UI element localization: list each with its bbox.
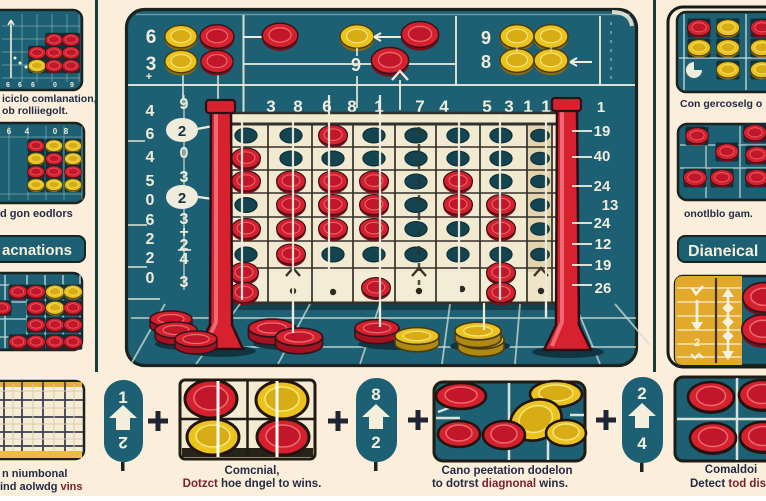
svg-text:2: 2 bbox=[637, 384, 646, 403]
svg-text:8: 8 bbox=[481, 52, 491, 72]
svg-text:Con gercoselg o: Con gercoselg o bbox=[680, 98, 762, 110]
svg-text:2: 2 bbox=[178, 123, 186, 140]
svg-text:40: 40 bbox=[594, 148, 611, 165]
svg-text:4: 4 bbox=[146, 103, 155, 120]
svg-text:Detect tod dis: Detect tod dis bbox=[690, 478, 766, 490]
svg-text:12: 12 bbox=[595, 236, 612, 253]
svg-text:onotlblo gam.: onotlblo gam. bbox=[684, 208, 753, 220]
svg-text:to dotrst diagnonal wins.: to dotrst diagnonal wins. bbox=[432, 478, 568, 490]
svg-text:4: 4 bbox=[146, 149, 155, 166]
svg-text:1: 1 bbox=[597, 99, 605, 116]
svg-text:0: 0 bbox=[146, 270, 155, 287]
svg-text:9: 9 bbox=[351, 55, 361, 75]
svg-text:8: 8 bbox=[64, 127, 69, 136]
svg-text:2: 2 bbox=[694, 337, 700, 349]
svg-text:6: 6 bbox=[7, 127, 12, 136]
svg-text:Dotzct hoe dngel to wins.: Dotzct hoe dngel to wins. bbox=[183, 478, 322, 490]
svg-text:6: 6 bbox=[31, 82, 35, 89]
svg-text:iciclo comlanation,: iciclo comlanation, bbox=[2, 93, 97, 105]
svg-text:acnations: acnations bbox=[2, 242, 72, 259]
svg-text:ob rolliiegolt.: ob rolliiegolt. bbox=[2, 105, 68, 117]
svg-text:d gon eodlors: d gon eodlors bbox=[0, 208, 73, 220]
svg-text:6: 6 bbox=[146, 212, 155, 229]
svg-text:26: 26 bbox=[595, 280, 612, 297]
svg-text:Comaldoi: Comaldoi bbox=[705, 464, 757, 476]
svg-text:2: 2 bbox=[371, 433, 380, 452]
svg-text:2: 2 bbox=[178, 190, 186, 207]
svg-text:6: 6 bbox=[146, 27, 157, 48]
svg-text:19: 19 bbox=[595, 257, 612, 274]
svg-text:0: 0 bbox=[180, 145, 189, 162]
svg-text:0: 0 bbox=[53, 82, 57, 89]
svg-text:6: 6 bbox=[146, 126, 155, 143]
svg-text:9: 9 bbox=[481, 28, 491, 48]
svg-text:0: 0 bbox=[53, 127, 58, 136]
svg-text:5: 5 bbox=[146, 173, 155, 190]
svg-text:3: 3 bbox=[180, 274, 189, 291]
svg-text:13: 13 bbox=[602, 197, 619, 214]
svg-text:Cano peetation dodelon: Cano peetation dodelon bbox=[442, 465, 573, 477]
svg-text:19: 19 bbox=[594, 123, 611, 140]
svg-text:9: 9 bbox=[180, 96, 189, 113]
svg-text:ind aolwdg vins: ind aolwdg vins bbox=[0, 481, 83, 493]
svg-text:6: 6 bbox=[18, 82, 22, 89]
svg-text:24: 24 bbox=[594, 215, 611, 232]
svg-text:9: 9 bbox=[70, 82, 74, 89]
svg-text:8: 8 bbox=[371, 385, 380, 404]
svg-text:Dianeical: Dianeical bbox=[688, 243, 758, 260]
svg-text:2: 2 bbox=[146, 250, 155, 267]
svg-text:0: 0 bbox=[146, 192, 155, 209]
svg-text:3: 3 bbox=[180, 169, 189, 186]
svg-text:4: 4 bbox=[637, 434, 647, 453]
svg-text:4: 4 bbox=[25, 127, 30, 136]
svg-text:24: 24 bbox=[594, 178, 611, 195]
svg-text:4: 4 bbox=[180, 251, 189, 268]
svg-text:Comcnial,: Comcnial, bbox=[225, 465, 280, 477]
svg-text:1: 1 bbox=[118, 388, 127, 407]
svg-text:2: 2 bbox=[146, 231, 155, 248]
svg-text:6: 6 bbox=[6, 82, 10, 89]
svg-text:+: + bbox=[146, 71, 152, 83]
svg-text:n niumbonal: n niumbonal bbox=[2, 468, 67, 480]
svg-text:2: 2 bbox=[118, 433, 127, 452]
